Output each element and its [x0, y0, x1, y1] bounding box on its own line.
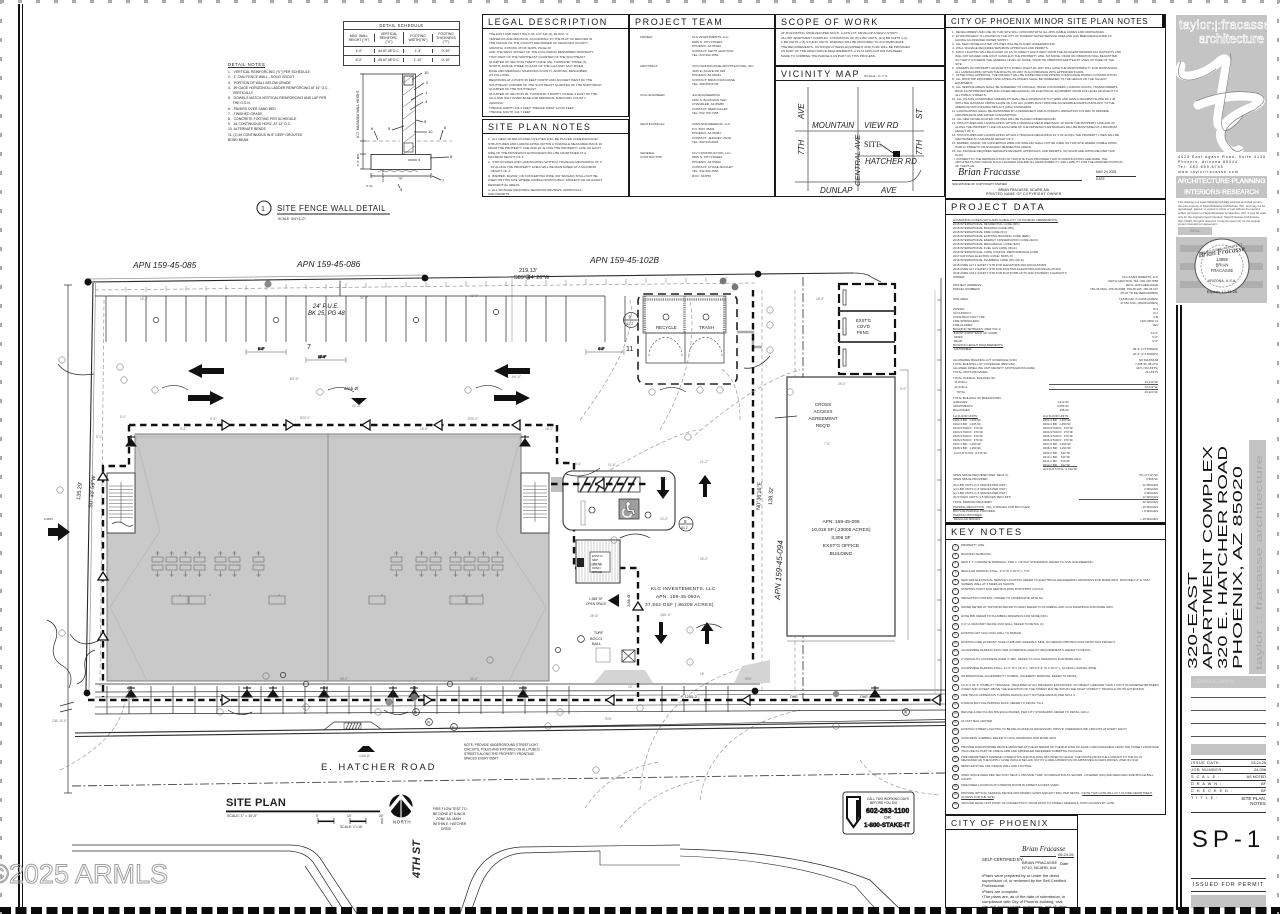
- svg-text:320-EAST: 320-EAST: [1186, 571, 1200, 669]
- svg-text:taylor :: fracasse architectur: taylor :: fracasse architecture: [1254, 455, 1264, 670]
- svg-text:320 E. HATCHER ROAD: 320 E. HATCHER ROAD: [1216, 446, 1230, 669]
- svg-text:PHOENIX, AZ 85020: PHOENIX, AZ 85020: [1231, 466, 1245, 669]
- svg-text:APARTMENT COMPLEX: APARTMENT COMPLEX: [1201, 445, 1215, 669]
